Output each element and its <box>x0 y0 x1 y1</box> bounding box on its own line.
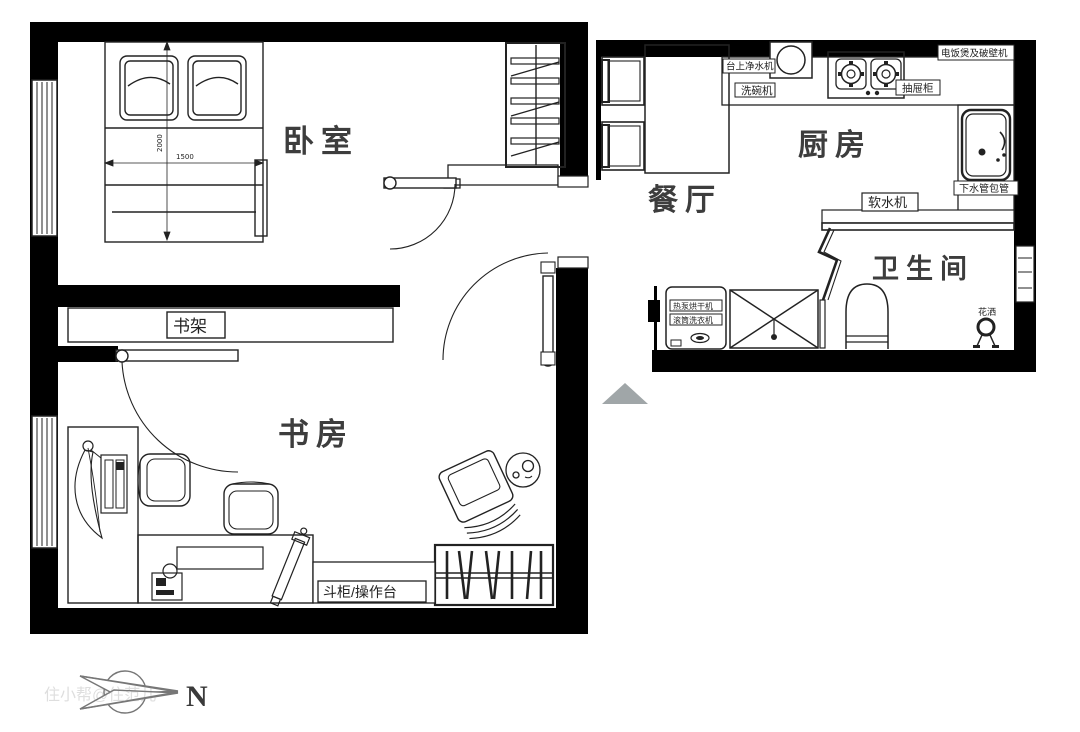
study-side-desk <box>68 427 138 603</box>
bathroom-label: 卫生间 <box>872 254 974 284</box>
watermark: 住小帮@住范儿 <box>44 686 156 704</box>
dining-table <box>645 45 729 173</box>
study-right-door <box>443 253 555 366</box>
water-softener-label: 软水机 <box>868 195 907 210</box>
study-tilted-board <box>267 525 313 607</box>
armchair <box>437 449 524 545</box>
corridor-opening-frames <box>558 176 588 268</box>
dishwasher-label: 洗碗机 <box>741 84 773 97</box>
bath-sink <box>962 110 1010 180</box>
drain-boxing-label: 下水管包管 <box>959 182 1009 195</box>
floorplan-svg: 2000 1500 卧室 书架 <box>0 0 1080 732</box>
study-window <box>32 416 57 548</box>
bathroom-folding-door <box>819 228 841 348</box>
bathroom-window <box>1016 246 1034 302</box>
bookshelf <box>68 308 393 342</box>
compass-north-label: N <box>186 680 208 713</box>
study-chair-2 <box>224 482 278 534</box>
floorplan-canvas: 2000 1500 卧室 书架 <box>0 0 1080 732</box>
shower-tray <box>730 290 818 348</box>
bed-width-dim: 1500 <box>176 153 194 161</box>
study-slatted-cabinet <box>435 545 553 605</box>
shower-head-symbol <box>973 319 999 348</box>
purifier-label: 台上净水机 <box>726 61 774 73</box>
wardrobe <box>506 43 565 167</box>
bed <box>105 42 267 242</box>
kitchen-sink <box>770 42 812 78</box>
bedroom-window <box>32 80 57 236</box>
entry-arrow <box>602 383 648 404</box>
bed-length-dim: 2000 <box>156 134 164 152</box>
stove <box>828 52 904 98</box>
kitchen-label: 厨房 <box>798 129 872 162</box>
study-desk <box>138 535 313 603</box>
side-table <box>506 453 540 487</box>
drawer-cabinet-label: 抽屉柜 <box>902 82 934 95</box>
washer-label-2: 滚筒洗衣机 <box>673 315 713 325</box>
bookshelf-label: 书架 <box>173 317 207 336</box>
dining-label: 餐厅 <box>648 184 722 217</box>
toilet <box>846 284 888 349</box>
shower-head-label: 花洒 <box>978 306 996 317</box>
dining-chair-2 <box>602 122 644 170</box>
rice-cooker-label: 电饭煲及破壁机 <box>941 48 1008 60</box>
study-chair-1 <box>138 454 190 506</box>
dining-chair-1 <box>602 57 644 105</box>
washer-label-1: 热泵烘干机 <box>673 301 713 311</box>
bedroom-door <box>384 177 456 249</box>
bathroom-north-wall <box>822 210 1014 230</box>
bedroom-label: 卧室 <box>283 124 359 159</box>
study-label: 书房 <box>278 417 354 452</box>
wardrobe-bench <box>444 165 558 188</box>
bed-dimension-lines <box>105 42 263 240</box>
sideboard-label: 斗柜/操作台 <box>323 584 397 600</box>
